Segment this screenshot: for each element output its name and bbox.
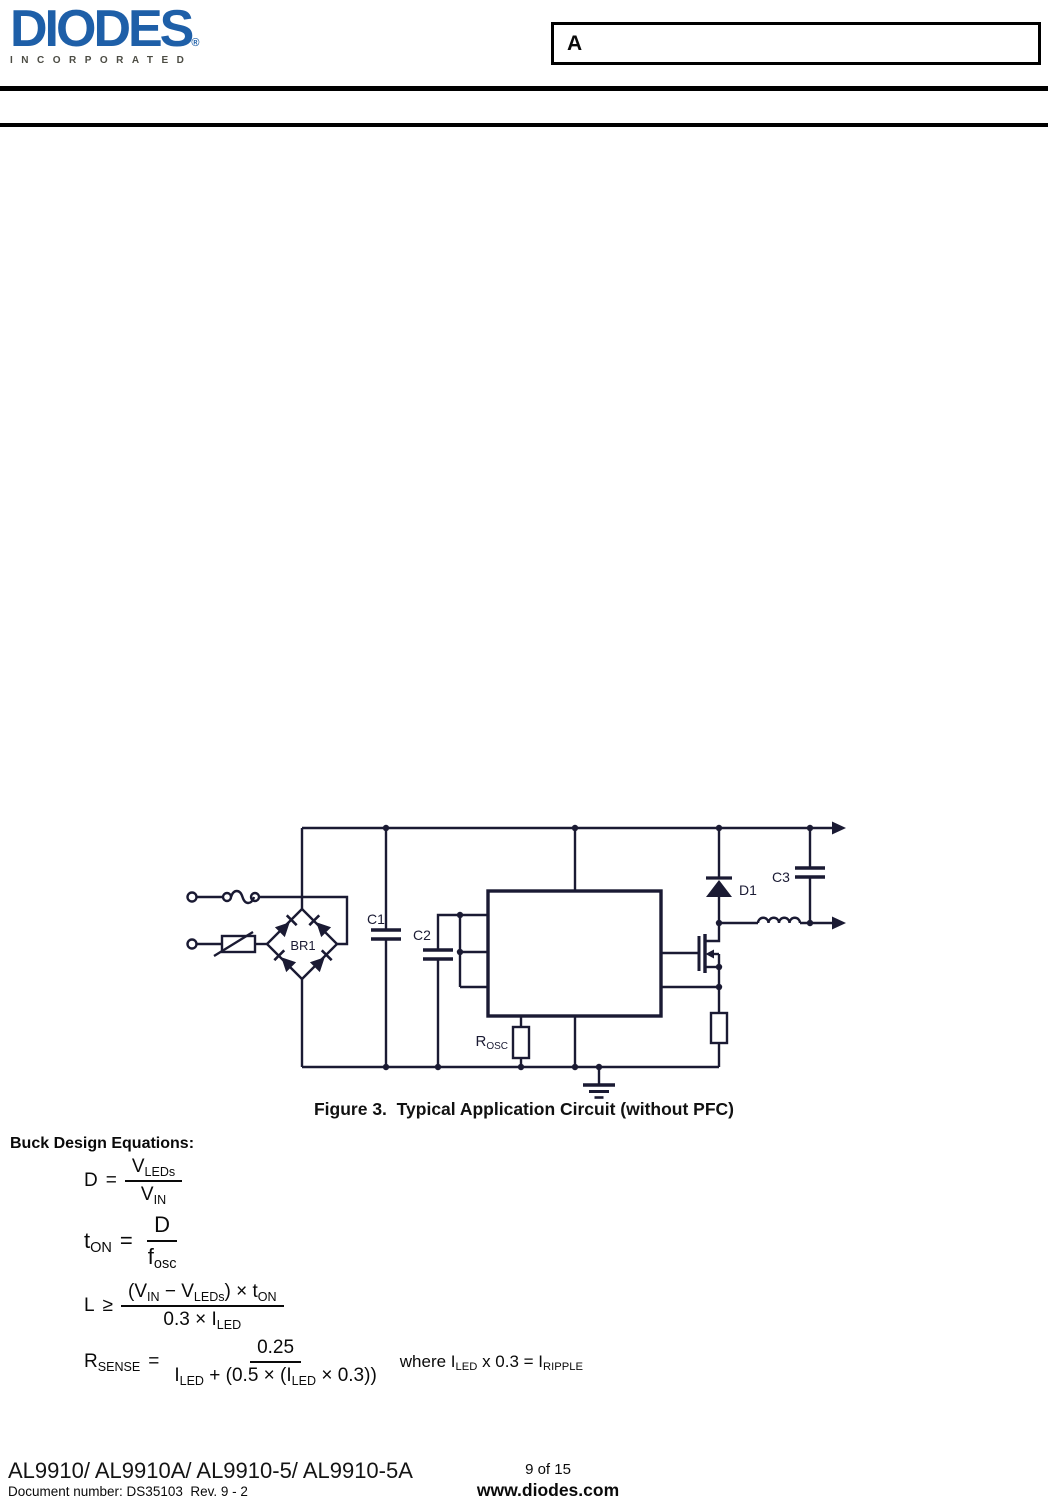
equation-fraction: VLEDs VIN bbox=[125, 1156, 182, 1206]
application-circuit-diagram: BR1 C1 C2 C3 D1 ROSC bbox=[160, 815, 860, 1107]
input-terminal-bottom bbox=[188, 940, 197, 949]
fraction-numerator: 0.25 bbox=[250, 1337, 301, 1363]
rosc-label-base: R bbox=[475, 1033, 486, 1050]
equation-on-time: tON = D fosc bbox=[84, 1212, 183, 1270]
wire-c2-top bbox=[438, 915, 488, 950]
footer-part-numbers: AL9910/ AL9910A/ AL9910-5/ AL9910-5A bbox=[8, 1458, 413, 1484]
rosc-label: ROSC bbox=[475, 1033, 508, 1052]
footer-document-number: Document number: DS35103 Rev. 9 - 2 bbox=[8, 1484, 248, 1499]
header-rule-bottom bbox=[0, 123, 1048, 127]
equation-ripple-note: where ILED x 0.3 = IRIPPLE bbox=[400, 1352, 583, 1372]
equation-sense-resistor: RSENSE = 0.25 ILED + (0.5 × (ILED × 0.3)… bbox=[84, 1337, 583, 1387]
c3-label: C3 bbox=[772, 869, 790, 885]
registered-trademark-icon: ® bbox=[191, 37, 199, 49]
equation-inductance: L ≥ (VIN − VLEDs) × tON 0.3 × ILED bbox=[84, 1281, 284, 1331]
datasheet-page: { "colors": { "logo_blue": "#1e5fa8", "t… bbox=[0, 0, 1048, 1499]
equation-fraction: (VIN − VLEDs) × tON 0.3 × ILED bbox=[121, 1281, 284, 1331]
rosc-label-sub: OSC bbox=[486, 1041, 508, 1052]
fraction-numerator: (VIN − VLEDs) × tON bbox=[121, 1281, 284, 1307]
mosfet-drain-lead bbox=[705, 923, 719, 941]
sense-resistor-body bbox=[711, 1013, 727, 1043]
bridge-label: BR1 bbox=[290, 938, 315, 953]
c2-label: C2 bbox=[413, 927, 431, 943]
rosc-resistor-body bbox=[513, 1027, 529, 1058]
fraction-denominator: VIN bbox=[134, 1182, 173, 1206]
equation-lhs: L bbox=[84, 1295, 95, 1317]
page-indicator: 9 of 15 bbox=[448, 1461, 648, 1478]
equation-duty-cycle: D = VLEDs VIN bbox=[84, 1156, 182, 1206]
revision-label: A bbox=[554, 32, 582, 56]
diodes-logo-text: DIODES bbox=[10, 4, 191, 54]
output-arrow-bottom bbox=[832, 917, 846, 930]
equation-lhs: tON bbox=[84, 1228, 112, 1254]
d1-diode-icon bbox=[706, 880, 732, 897]
equation-fraction: 0.25 ILED + (0.5 × (ILED × 0.3)) bbox=[167, 1337, 383, 1387]
equation-relation: = bbox=[106, 1170, 117, 1192]
equation-relation: ≥ bbox=[103, 1295, 113, 1317]
diodes-logo-wordmark: DIODES® bbox=[10, 4, 199, 54]
equation-relation: = bbox=[148, 1351, 159, 1373]
fuse-terminal-left bbox=[223, 893, 231, 901]
output-inductor-icon bbox=[758, 918, 800, 923]
header-rule-top bbox=[0, 86, 1048, 91]
website-url: www.diodes.com bbox=[448, 1480, 648, 1501]
fraction-numerator: D bbox=[147, 1212, 177, 1242]
fraction-denominator: ILED + (0.5 × (ILED × 0.3)) bbox=[167, 1363, 383, 1387]
diodes-logo-tagline: INCORPORATED bbox=[10, 55, 199, 66]
fraction-numerator: VLEDs bbox=[125, 1156, 182, 1182]
fraction-denominator: fosc bbox=[141, 1242, 184, 1270]
equations-heading: Buck Design Equations: bbox=[10, 1135, 194, 1153]
figure-caption: Figure 3. Typical Application Circuit (w… bbox=[0, 1099, 1048, 1120]
output-arrow-top bbox=[832, 822, 846, 835]
input-terminal-top bbox=[188, 893, 197, 902]
equation-fraction: D fosc bbox=[141, 1212, 184, 1270]
varistor-body bbox=[222, 936, 255, 952]
footer-center-block: 9 of 15 www.diodes.com bbox=[448, 1461, 648, 1501]
equation-lhs: D bbox=[84, 1170, 98, 1192]
d1-label: D1 bbox=[739, 882, 757, 898]
controller-ic-body bbox=[488, 891, 661, 1016]
revision-box: A bbox=[551, 22, 1041, 65]
fraction-denominator: 0.3 × ILED bbox=[156, 1307, 248, 1331]
diodes-logo: DIODES® INCORPORATED bbox=[10, 4, 199, 66]
equation-lhs: RSENSE bbox=[84, 1351, 140, 1373]
equation-relation: = bbox=[120, 1228, 133, 1254]
mosfet-body-arrow bbox=[706, 950, 715, 959]
c1-label: C1 bbox=[367, 911, 385, 927]
